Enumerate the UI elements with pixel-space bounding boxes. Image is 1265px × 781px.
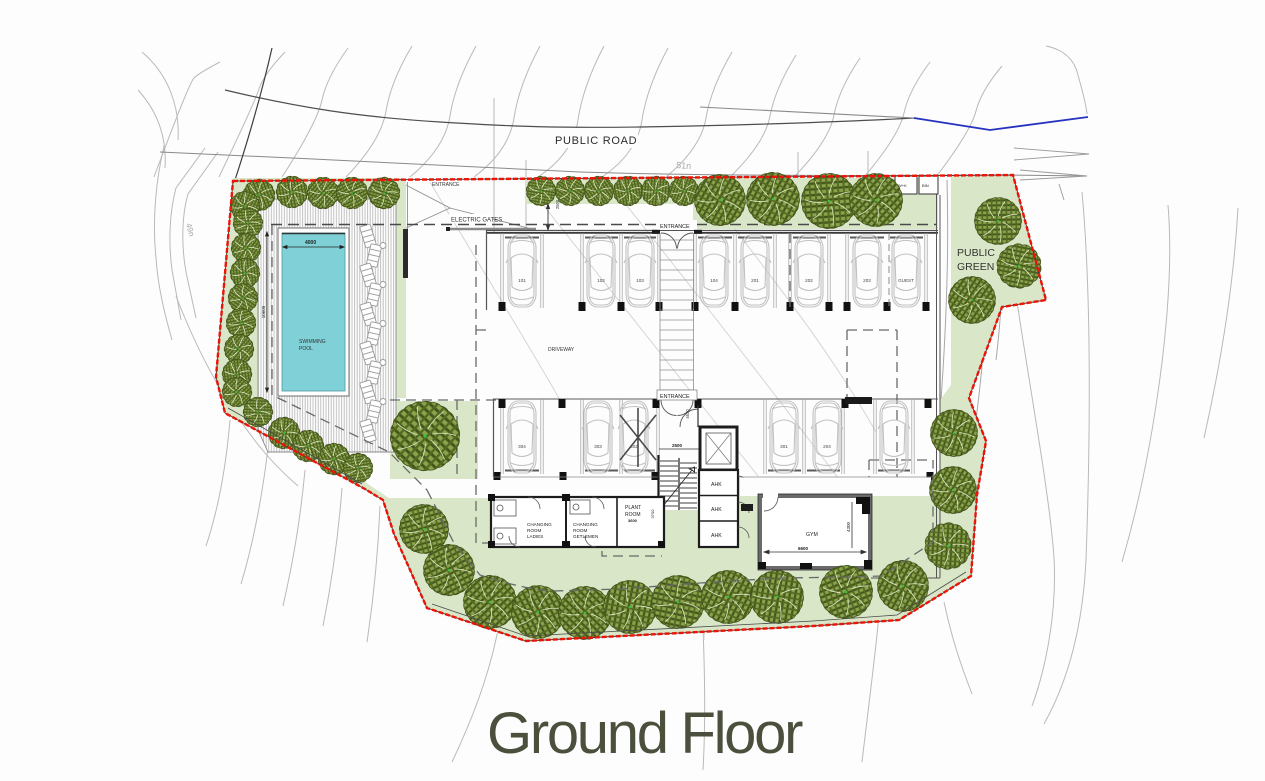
svg-text:PLANT: PLANT [625, 505, 641, 511]
svg-text:101: 101 [518, 278, 526, 283]
svg-text:ENTRANCE: ENTRANCE [660, 394, 690, 400]
svg-text:303: 303 [594, 444, 602, 449]
svg-text:AHK: AHK [711, 533, 722, 539]
svg-text:102: 102 [597, 278, 605, 283]
svg-text:PUBLIC: PUBLIC [957, 247, 995, 259]
svg-text:6600: 6600 [798, 546, 809, 551]
svg-text:103: 103 [636, 278, 644, 283]
svg-text:AHK: AHK [711, 507, 722, 513]
svg-text:4000: 4000 [305, 240, 316, 246]
svg-text:ENTRANCE: ENTRANCE [432, 182, 460, 188]
svg-text:DRIVEWAY: DRIVEWAY [548, 347, 575, 353]
svg-text:4630: 4630 [685, 409, 690, 419]
svg-text:LADIES: LADIES [527, 534, 543, 539]
svg-text:PUBLIC ROAD: PUBLIC ROAD [555, 135, 637, 147]
svg-text:203: 203 [863, 278, 871, 283]
svg-text:Ground Floor: Ground Floor [487, 701, 803, 766]
svg-text:3600: 3600 [628, 518, 638, 523]
svg-text:CHANGING: CHANGING [573, 522, 598, 527]
svg-text:BIN: BIN [922, 183, 929, 188]
svg-text:3700: 3700 [650, 509, 655, 519]
svg-text:ROOM: ROOM [527, 528, 541, 533]
svg-text:301: 301 [780, 444, 788, 449]
svg-text:CHANGING: CHANGING [527, 522, 552, 527]
svg-text:10600: 10600 [261, 305, 266, 318]
svg-text:GUEST: GUEST [898, 278, 914, 283]
svg-text:201: 201 [751, 278, 759, 283]
svg-text:POOL: POOL [299, 346, 313, 352]
svg-text:GREEN: GREEN [957, 261, 994, 273]
svg-text:204: 204 [823, 444, 831, 449]
svg-text:GETLEMEN: GETLEMEN [573, 534, 598, 539]
svg-text:SWIMMING: SWIMMING [299, 339, 326, 345]
svg-text:ELECTRIC GATES: ELECTRIC GATES [451, 218, 502, 224]
svg-text:202: 202 [805, 278, 813, 283]
svg-text:ENTRANCE: ENTRANCE [660, 224, 690, 230]
svg-text:ROOM: ROOM [573, 528, 587, 533]
svg-text:304: 304 [518, 444, 526, 449]
svg-text:4300: 4300 [846, 521, 851, 532]
svg-text:104: 104 [710, 278, 718, 283]
svg-text:GYM: GYM [806, 532, 818, 538]
svg-text:AHK: AHK [711, 482, 722, 488]
svg-text:2500: 2500 [672, 443, 683, 448]
svg-text:51n: 51n [676, 160, 692, 171]
